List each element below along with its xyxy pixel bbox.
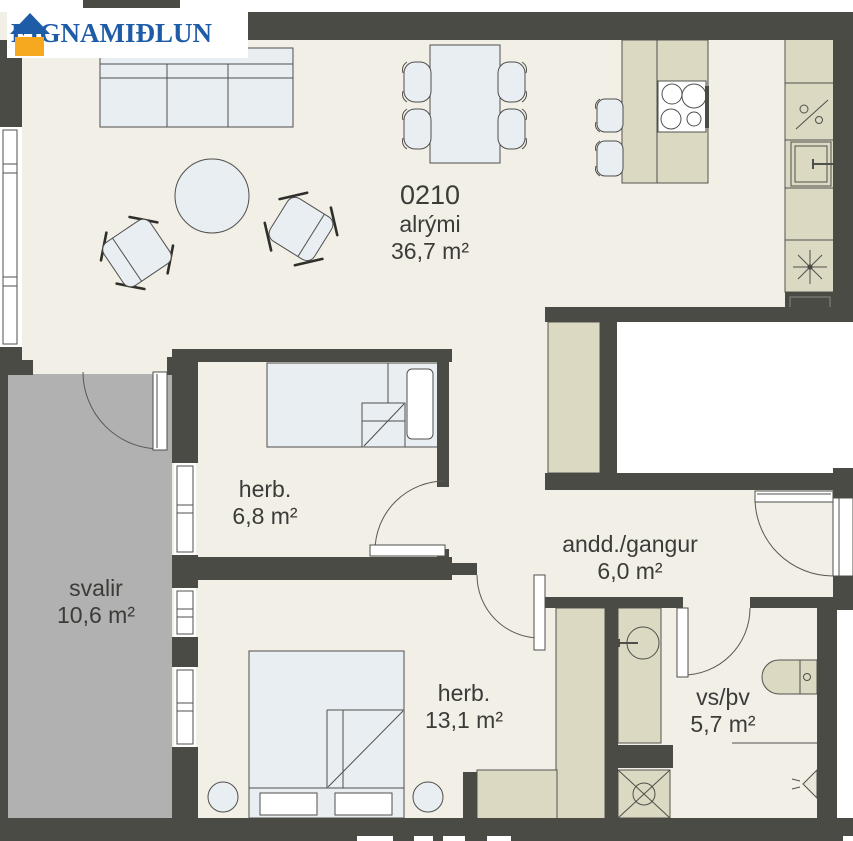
- room-name: herb.: [425, 680, 503, 707]
- room-name: svalir: [57, 575, 135, 602]
- bar-stool: [596, 99, 624, 132]
- room-label-herb-large: herb. 13,1 m²: [425, 680, 503, 734]
- room-area: 13,1 m²: [425, 707, 503, 734]
- room-label-alrymi: 0210 alrými 36,7 m²: [391, 180, 469, 265]
- toilet-icon: [762, 660, 817, 694]
- single-bed: [267, 363, 440, 447]
- room-name: alrými: [391, 211, 469, 238]
- unit-number: 0210: [391, 180, 469, 211]
- room-area: 6,0 m²: [562, 558, 698, 585]
- window: [174, 588, 196, 637]
- pillow: [407, 369, 433, 439]
- room-area: 36,7 m²: [391, 238, 469, 265]
- dining-chair: [498, 109, 527, 149]
- sofa: [100, 48, 293, 127]
- room-label-bath: vs/þv 5,7 m²: [690, 684, 755, 738]
- nightstand: [413, 782, 443, 812]
- kitchen-counter: [785, 32, 835, 318]
- hall-closet: [548, 322, 600, 473]
- floorplan: 0210 alrými 36,7 m² herb. 6,8 m² svalir …: [0, 0, 853, 841]
- room-label-svalir: svalir 10,6 m²: [57, 575, 135, 629]
- balcony-railing: [0, 375, 8, 841]
- bar-stool: [596, 141, 624, 176]
- nightstand: [208, 782, 238, 812]
- room-area: 5,7 m²: [690, 711, 755, 738]
- logo-house-icon: [7, 8, 53, 56]
- freezer-icon: [793, 250, 827, 284]
- bathroom-vanity: [612, 608, 661, 743]
- pillow: [260, 793, 317, 815]
- dining-chair: [403, 62, 432, 102]
- pillow: [335, 793, 392, 815]
- window: [0, 127, 22, 347]
- window: [174, 463, 196, 555]
- room-label-herb-small: herb. 6,8 m²: [232, 476, 297, 530]
- room-label-gangur: andd./gangur 6,0 m²: [562, 531, 698, 585]
- room-area: 10,6 m²: [57, 602, 135, 629]
- window: [174, 667, 196, 747]
- room-name: andd./gangur: [562, 531, 698, 558]
- dining-chair: [403, 109, 432, 149]
- shower-icon: [618, 770, 670, 818]
- double-bed: [249, 651, 404, 818]
- dining-chair: [498, 62, 527, 102]
- kitchen-island: [622, 40, 709, 183]
- outside-right: [837, 608, 853, 820]
- room-name: vs/þv: [690, 684, 755, 711]
- room-name: herb.: [232, 476, 297, 503]
- dining-table: [430, 45, 500, 163]
- room-area: 6,8 m²: [232, 503, 297, 530]
- coffee-table: [175, 159, 249, 233]
- washer-icon: [618, 745, 673, 768]
- shaft-cutout: [617, 322, 853, 473]
- brand-logo: EIGNAMIÐLUN: [7, 8, 248, 58]
